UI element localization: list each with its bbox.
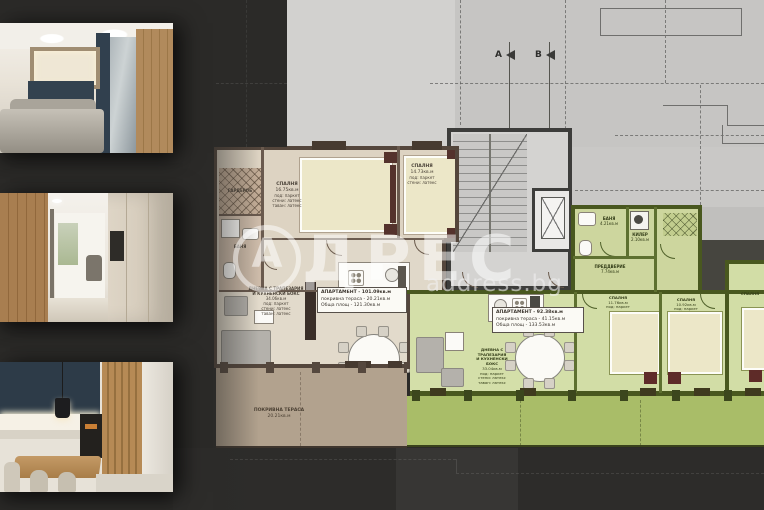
- chair-icon: [338, 342, 349, 353]
- wall: [725, 260, 729, 393]
- terrace-edge: [407, 445, 764, 447]
- dining-chair: [4, 462, 20, 492]
- hall-panel-seam: [148, 193, 149, 322]
- apartment-total-area: Обща площ - 121.30кв.м: [321, 303, 403, 310]
- roof-step-line: [663, 105, 727, 106]
- elevator-car-icon: [541, 197, 565, 239]
- grid-line: [700, 85, 701, 205]
- hall-window-green: [58, 223, 78, 265]
- hall-ceiling-light: [52, 199, 62, 203]
- kitchen-oven-display: [85, 424, 97, 429]
- nightstand-icon: [384, 152, 397, 163]
- washing-machine-drum-icon: [634, 215, 643, 224]
- section-marker-b-icon: [546, 50, 555, 60]
- headboard-icon: [390, 165, 396, 223]
- section-label-b: B: [535, 50, 542, 60]
- grid-line: [615, 135, 764, 136]
- room-area: 2.10кв.м: [626, 237, 654, 242]
- wall: [571, 205, 575, 292]
- apartment-total-area: Обща площ - 133.53кв.м: [496, 323, 580, 330]
- green-terrace: [407, 396, 764, 447]
- wardrobe-icon: [663, 213, 697, 236]
- brand-logo-letter: А: [233, 231, 301, 277]
- roof-step-line: [722, 143, 764, 144]
- dining-chair: [58, 472, 76, 492]
- roof-outline-rect: [600, 8, 742, 36]
- room-finish: таван: латекс: [470, 381, 514, 386]
- drawing-area-left: [287, 0, 455, 147]
- grid-line: [575, 190, 764, 191]
- hall-panel-seam: [126, 193, 127, 322]
- dining-table: [12, 456, 101, 478]
- listing-collage: A B: [0, 0, 764, 510]
- room-area: 7.74кв.м: [580, 269, 640, 274]
- photo-bedroom-render[interactable]: [0, 23, 173, 153]
- terrace-joint: [640, 400, 641, 446]
- drawing-area-right-notch-top: [700, 207, 764, 240]
- room-label-hall: ПРЕДДВЕРИЕ 7.74кв.м: [580, 264, 640, 274]
- room-finish: таван: латекс: [264, 203, 310, 208]
- building-shadow-notch2: [700, 262, 727, 292]
- room-area: 4.21кв.м: [592, 221, 626, 226]
- kitchen-wood-slats: [102, 362, 142, 492]
- faint-line: [216, 83, 287, 84]
- bedroom-bed: [0, 109, 104, 153]
- bed-icon: [610, 312, 660, 374]
- bedroom-wardrobe: [136, 29, 173, 153]
- armchair-icon: [445, 332, 464, 351]
- wall: [698, 205, 702, 292]
- room-label-bedroom1: СПАЛНЯ 16.75кв.м под: паркет стени: лате…: [264, 182, 310, 208]
- partition: [573, 256, 655, 259]
- room-label-closet: КИЛЕР 2.10кв.м: [626, 232, 654, 242]
- sofa-icon: [416, 337, 444, 373]
- roof-step-line: [722, 125, 723, 143]
- armchair-icon: [441, 368, 464, 387]
- bedroom-mirror: [110, 37, 136, 153]
- hall-floor: [48, 298, 108, 322]
- pendant-shade: [55, 398, 70, 418]
- toilet-icon: [579, 240, 592, 256]
- wall: [573, 205, 702, 209]
- chair-icon: [544, 378, 555, 389]
- bed-icon: [742, 308, 764, 370]
- section-label-a: A: [495, 50, 502, 60]
- dining-table-icon: [515, 334, 565, 382]
- room-label-living: ДНЕВНА С ТРАПЕЗАРИЯ И КУХНЕНСКИ БОКС 33.…: [470, 348, 514, 386]
- window-icon: [312, 141, 346, 150]
- roof-step-line: [727, 125, 764, 126]
- window-icon: [412, 141, 442, 150]
- nightstand-icon: [749, 370, 762, 382]
- photo-kitchen-render[interactable]: [0, 362, 173, 492]
- pendant-cord: [62, 362, 63, 398]
- apartment-info-green: АПАРТАМЕНТ - 92.38кв.м покривна тераса -…: [492, 307, 584, 333]
- building-shadow-notch: [700, 240, 764, 262]
- photo-hallway-render[interactable]: [0, 193, 173, 322]
- nightstand-icon: [668, 372, 681, 384]
- bed-icon: [668, 312, 722, 374]
- partition: [659, 292, 662, 393]
- kitchen-oven-tower: [80, 414, 102, 458]
- bed-icon: [300, 158, 392, 232]
- room-label-bedroom2: СПАЛНЯ 14.73кв.м под: паркет стени: лате…: [402, 164, 442, 185]
- kitchen-upper-cabinets: [0, 362, 100, 414]
- faint-patch: [396, 448, 518, 510]
- hall-wardrobe-left: [0, 193, 48, 322]
- hall-doorframe: [50, 209, 54, 305]
- chair-icon: [356, 326, 367, 337]
- room-finish: под: паркет: [596, 305, 640, 310]
- brand-site-url: address.bg: [426, 271, 563, 297]
- room-label-bathroom: БАНЯ 4.21кв.м: [592, 216, 626, 226]
- grid-line: [430, 83, 764, 84]
- hall-tv: [110, 231, 124, 261]
- terrace-joint: [520, 400, 521, 446]
- room-finish: стени: латекс: [402, 180, 442, 185]
- hall-chair-silhouette: [86, 255, 102, 281]
- room-label-bedroom1: СПАЛНЯ 11.76кв.м под: паркет: [596, 296, 640, 310]
- room-label-bedroom3: СПАЛНЯ: [736, 292, 764, 297]
- room-name: СПАЛНЯ: [736, 292, 764, 297]
- faint-line: [246, 0, 247, 147]
- section-marker-a-icon: [506, 50, 515, 60]
- partition: [654, 207, 657, 292]
- sofa-back: [96, 474, 173, 492]
- room-label-bedroom2: СПАЛНЯ 10.92кв.м под: паркет: [664, 298, 708, 312]
- chair-icon: [378, 326, 389, 337]
- grid-line: [460, 0, 461, 125]
- terrace-footings: [412, 390, 764, 401]
- dining-chair: [30, 470, 48, 492]
- kitchen-right-column: [142, 362, 173, 492]
- wall: [727, 260, 764, 264]
- nightstand-icon: [644, 372, 657, 384]
- room-finish: под: паркет: [664, 307, 708, 312]
- apartment-title: АПАРТАМЕНТ - 92.38кв.м: [496, 310, 580, 317]
- roof-step-line: [727, 105, 728, 125]
